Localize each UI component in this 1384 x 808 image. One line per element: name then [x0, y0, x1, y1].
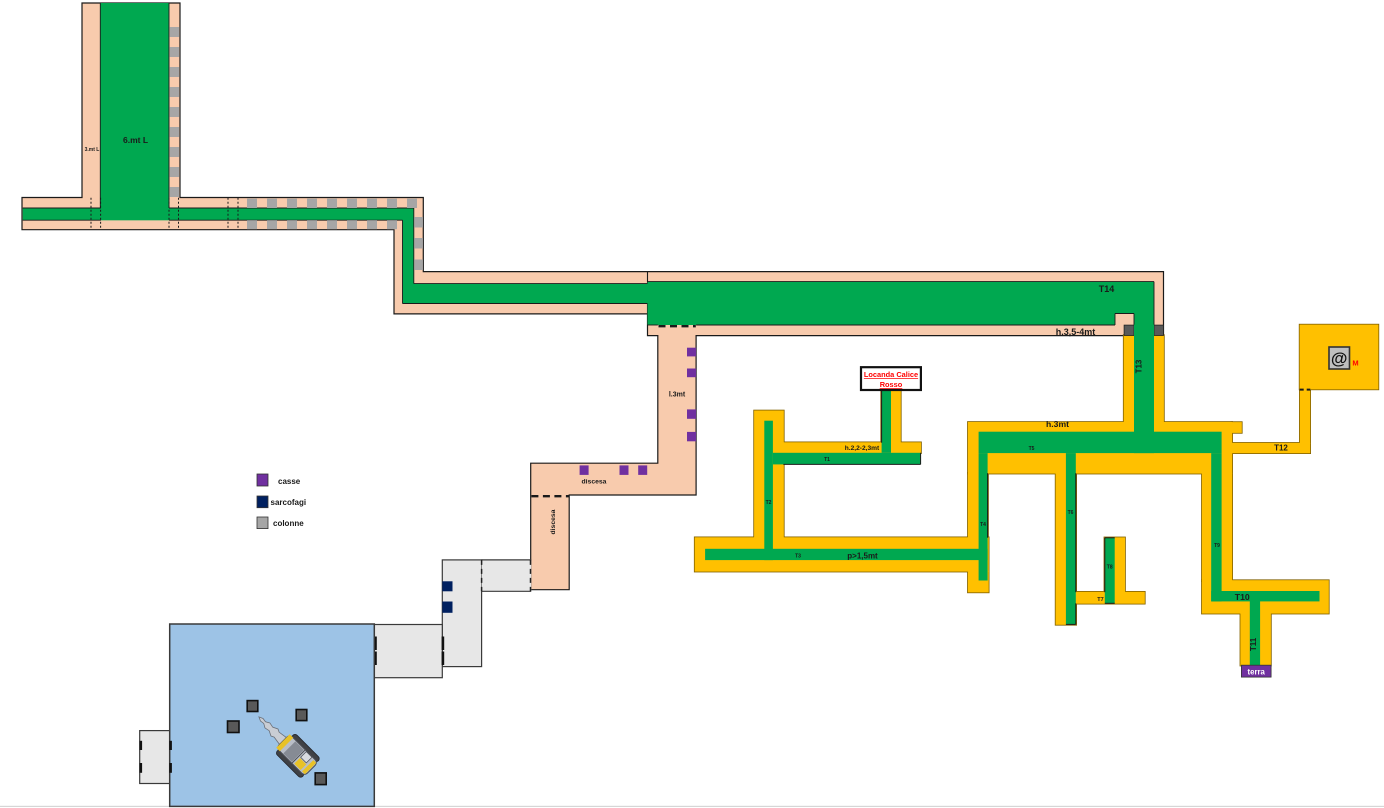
- svg-text:h.3mt: h.3mt: [1046, 419, 1069, 429]
- svg-text:@: @: [1331, 349, 1348, 368]
- svg-text:Locanda Calice: Locanda Calice: [864, 370, 918, 379]
- svg-text:T14: T14: [1099, 284, 1115, 294]
- svg-text:h.3,5-4mt: h.3,5-4mt: [1056, 327, 1096, 337]
- svg-text:p>1,5mt: p>1,5mt: [847, 552, 878, 561]
- svg-text:discesa: discesa: [550, 509, 557, 534]
- svg-text:l.3mt: l.3mt: [669, 392, 686, 399]
- svg-text:T7: T7: [1097, 597, 1103, 603]
- svg-text:T8: T8: [1107, 565, 1113, 571]
- svg-text:T4: T4: [980, 522, 986, 528]
- svg-text:T2: T2: [766, 500, 772, 506]
- svg-text:M: M: [1352, 359, 1358, 368]
- svg-text:T3: T3: [795, 554, 801, 560]
- svg-text:T5: T5: [1029, 446, 1035, 452]
- svg-text:colonne: colonne: [273, 519, 304, 528]
- svg-text:T1: T1: [824, 457, 830, 463]
- svg-text:3.mt L: 3.mt L: [85, 147, 100, 153]
- svg-text:discesa: discesa: [582, 479, 607, 486]
- svg-text:Rosso: Rosso: [880, 380, 903, 389]
- svg-text:T11: T11: [1249, 637, 1258, 651]
- svg-text:sarcofagi: sarcofagi: [271, 498, 307, 507]
- svg-text:T9: T9: [1214, 543, 1220, 549]
- svg-text:T10: T10: [1235, 592, 1250, 602]
- svg-text:T6: T6: [1068, 510, 1074, 516]
- svg-text:casse: casse: [278, 477, 301, 486]
- svg-text:T12: T12: [1274, 444, 1288, 453]
- svg-text:h.2,2-2,3mt: h.2,2-2,3mt: [845, 445, 880, 452]
- svg-text:T13: T13: [1135, 359, 1144, 373]
- svg-text:6.mt L: 6.mt L: [123, 135, 148, 145]
- svg-text:terra: terra: [1248, 667, 1266, 676]
